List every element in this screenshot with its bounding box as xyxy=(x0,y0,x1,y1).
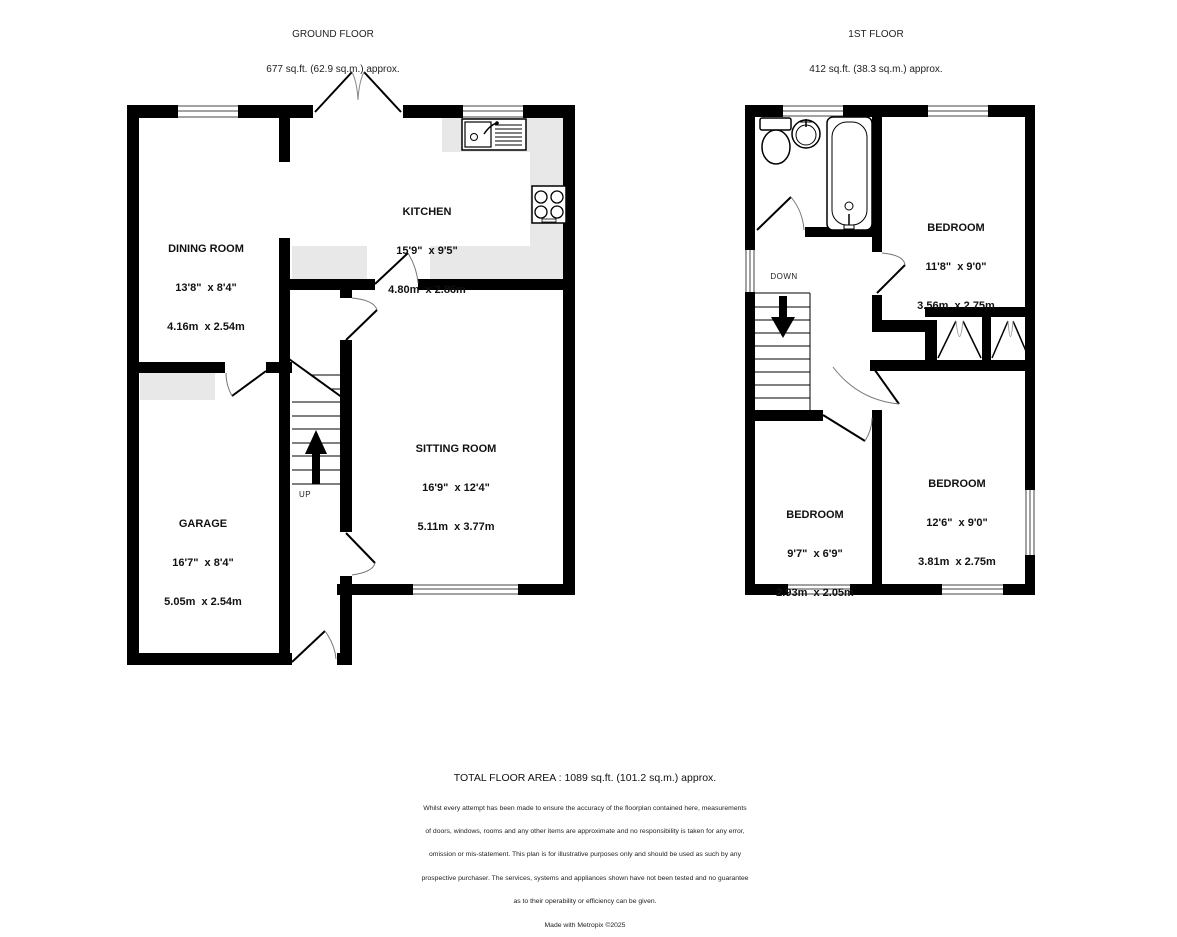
metropix-credit: Made with Metropix ©2025 xyxy=(421,922,748,930)
room-name: KITCHEN xyxy=(388,206,466,219)
disclaimer-line: of doors, windows, rooms and any other i… xyxy=(421,828,748,836)
room-name: BEDROOM xyxy=(918,478,996,491)
bedroom3-door-icon xyxy=(823,415,872,441)
ground-floor-title: GROUND FLOOR xyxy=(266,29,399,41)
room-name: BEDROOM xyxy=(776,509,854,522)
disclaimer: Whilst every attempt has been made to en… xyxy=(421,789,748,937)
ground-doors xyxy=(226,253,418,662)
room-label-bedroom3: BEDROOM 9'7" x 6'9" 2.93m x 2.05m xyxy=(776,483,854,613)
window-bedroom1 xyxy=(928,106,988,116)
room-dims-metric: 2.93m x 2.05m xyxy=(776,587,854,600)
basin-icon xyxy=(792,119,820,148)
first-floor-header: 1ST FLOOR 412 sq.ft. (38.3 sq.m.) approx… xyxy=(809,6,942,87)
first-floor-title: 1ST FLOOR xyxy=(809,29,942,41)
room-dims-imperial: 16'9" x 12'4" xyxy=(416,482,497,495)
room-dims-metric: 5.05m x 2.54m xyxy=(164,596,242,609)
hall-top-door-icon xyxy=(346,298,377,340)
room-label-dining-room: DINING ROOM 13'8" x 8'4" 4.16m x 2.54m xyxy=(167,217,245,347)
front-door-icon xyxy=(292,631,336,662)
hob-icon xyxy=(532,186,566,223)
room-dims-metric: 3.81m x 2.75m xyxy=(918,556,996,569)
stairs-down-icon xyxy=(755,293,810,410)
room-dims-imperial: 9'7" x 6'9" xyxy=(776,548,854,561)
window-bedroom2-bottom xyxy=(942,585,1003,594)
floorplan-page: { "ground_floor": { "title": "GROUND FLO… xyxy=(0,0,1177,870)
window-dining xyxy=(178,106,238,117)
room-dims-imperial: 11'8" x 9'0" xyxy=(917,261,995,274)
ground-floor-header: GROUND FLOOR 677 sq.ft. (62.9 sq.m.) app… xyxy=(266,6,399,87)
room-dims-metric: 4.80m x 2.86m xyxy=(388,284,466,297)
bedroom1-door-icon xyxy=(877,253,905,293)
hall-sitting-door-icon xyxy=(346,533,375,575)
room-dims-imperial: 12'6" x 9'0" xyxy=(918,517,996,530)
garage-door-icon xyxy=(226,371,266,396)
room-dims-imperial: 16'7" x 8'4" xyxy=(164,557,242,570)
bedroom2-door-icon xyxy=(833,366,899,404)
bathroom-door-icon xyxy=(757,197,804,230)
first-floor-area: 412 sq.ft. (38.3 sq.m.) approx. xyxy=(809,64,942,76)
room-name: BEDROOM xyxy=(917,222,995,235)
room-label-kitchen: KITCHEN 15'9" x 9'5" 4.80m x 2.86m xyxy=(388,180,466,310)
room-dims-imperial: 13'8" x 8'4" xyxy=(167,282,245,295)
window-sitting-room xyxy=(413,585,518,594)
room-dims-metric: 3.56m x 2.75m xyxy=(917,300,995,313)
window-bathroom xyxy=(783,106,843,116)
sink-icon xyxy=(462,119,526,150)
stairs-up-label: UP xyxy=(299,490,311,499)
disclaimer-line: omission or mis-statement. This plan is … xyxy=(421,851,748,859)
stairs-up-icon xyxy=(289,359,343,484)
disclaimer-line: Whilst every attempt has been made to en… xyxy=(421,805,748,813)
window-stairwell xyxy=(746,250,754,292)
room-label-garage: GARAGE 16'7" x 8'4" 5.05m x 2.54m xyxy=(164,492,242,622)
room-label-bedroom1: BEDROOM 11'8" x 9'0" 3.56m x 2.75m xyxy=(917,196,995,326)
ground-floor-area: 677 sq.ft. (62.9 sq.m.) approx. xyxy=(266,64,399,76)
floorplan-drawing xyxy=(0,0,1177,870)
room-label-sitting-room: SITTING ROOM 16'9" x 12'4" 5.11m x 3.77m xyxy=(416,417,497,547)
window-bedroom2-side xyxy=(1026,490,1034,555)
room-dims-metric: 4.16m x 2.54m xyxy=(167,321,245,334)
toilet-icon xyxy=(760,118,791,164)
disclaimer-line: as to their operability or efficiency ca… xyxy=(421,898,748,906)
total-floor-area: TOTAL FLOOR AREA : 1089 sq.ft. (101.2 sq… xyxy=(454,772,716,784)
bath-icon xyxy=(827,117,872,230)
room-label-bedroom2: BEDROOM 12'6" x 9'0" 3.81m x 2.75m xyxy=(918,452,996,582)
room-dims-metric: 5.11m x 3.77m xyxy=(416,521,497,534)
room-name: SITTING ROOM xyxy=(416,443,497,456)
stairs-down-label: DOWN xyxy=(770,272,797,281)
room-name: DINING ROOM xyxy=(167,243,245,256)
window-kitchen xyxy=(463,106,523,117)
room-name: GARAGE xyxy=(164,518,242,531)
room-dims-imperial: 15'9" x 9'5" xyxy=(388,245,466,258)
disclaimer-line: prospective purchaser. The services, sys… xyxy=(421,875,748,883)
